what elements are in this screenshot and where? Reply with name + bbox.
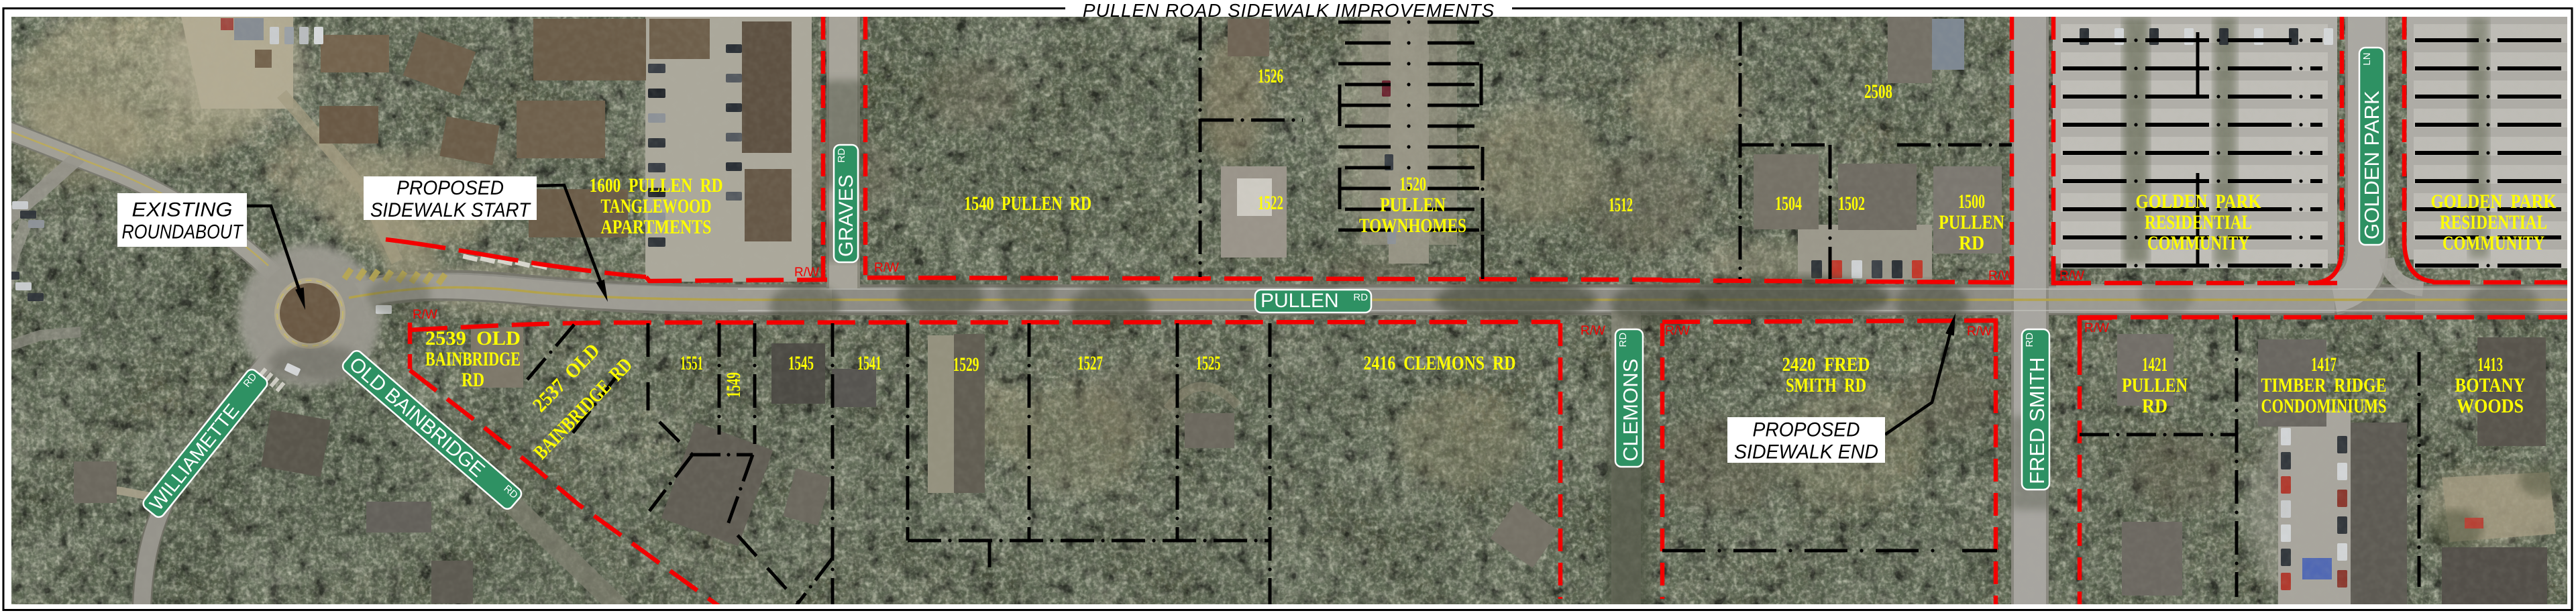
svg-text:RD: RD bbox=[1353, 292, 1368, 303]
svg-text:RD: RD bbox=[462, 369, 484, 391]
svg-text:RD: RD bbox=[2024, 333, 2035, 347]
svg-text:1417: 1417 bbox=[2311, 353, 2337, 376]
svg-text:RESIDENTIAL: RESIDENTIAL bbox=[2145, 211, 2252, 233]
svg-text:R/W: R/W bbox=[794, 266, 819, 280]
svg-text:PULLEN: PULLEN bbox=[1380, 194, 1446, 216]
svg-text:PULLEN: PULLEN bbox=[1939, 211, 2004, 233]
svg-text:PULLEN: PULLEN bbox=[2122, 374, 2188, 396]
svg-text:CONDOMINIUMS: CONDOMINIUMS bbox=[2261, 395, 2387, 417]
svg-text:PULLEN ROAD SIDEWALK IMPROVEME: PULLEN ROAD SIDEWALK IMPROVEMENTS bbox=[1083, 0, 1495, 21]
svg-text:GOLDEN PARK: GOLDEN PARK bbox=[2136, 190, 2262, 213]
svg-text:APARTMENTS: APARTMENTS bbox=[601, 216, 712, 238]
svg-text:1540 PULLEN RD: 1540 PULLEN RD bbox=[964, 192, 1091, 215]
svg-text:BAINBRIDGE: BAINBRIDGE bbox=[425, 348, 521, 370]
svg-text:SIDEWALK END: SIDEWALK END bbox=[1734, 441, 1878, 463]
svg-text:1525: 1525 bbox=[1196, 352, 1221, 374]
svg-text:PULLEN: PULLEN bbox=[1260, 290, 1339, 312]
svg-text:2539 OLD: 2539 OLD bbox=[425, 327, 521, 349]
svg-text:1520: 1520 bbox=[1399, 173, 1426, 195]
svg-text:WOODS: WOODS bbox=[2457, 395, 2524, 417]
svg-text:R/W: R/W bbox=[1665, 324, 1690, 338]
svg-text:GOLDEN PARK: GOLDEN PARK bbox=[2360, 91, 2383, 239]
svg-text:GRAVES: GRAVES bbox=[835, 174, 857, 257]
svg-text:1551: 1551 bbox=[680, 352, 703, 374]
svg-text:TOWNHOMES: TOWNHOMES bbox=[1359, 215, 1466, 237]
svg-text:RD: RD bbox=[1617, 333, 1629, 347]
svg-text:1549: 1549 bbox=[722, 372, 745, 398]
svg-text:RD: RD bbox=[836, 148, 847, 163]
svg-text:TANGLEWOOD: TANGLEWOOD bbox=[601, 195, 712, 217]
svg-text:1541: 1541 bbox=[857, 352, 881, 374]
svg-text:TIMBER RIDGE: TIMBER RIDGE bbox=[2261, 374, 2387, 396]
svg-text:RD: RD bbox=[2142, 395, 2167, 417]
svg-text:R/W: R/W bbox=[874, 261, 899, 275]
svg-text:2420 FRED: 2420 FRED bbox=[1782, 353, 1870, 376]
svg-text:SIDEWALK START: SIDEWALK START bbox=[370, 199, 531, 221]
svg-text:GOLDEN PARK: GOLDEN PARK bbox=[2431, 190, 2557, 213]
svg-text:1545: 1545 bbox=[788, 352, 814, 374]
svg-text:PROPOSED: PROPOSED bbox=[1753, 418, 1860, 441]
svg-text:R/W: R/W bbox=[1988, 269, 2013, 283]
svg-text:R/W: R/W bbox=[2059, 269, 2084, 283]
svg-text:1500: 1500 bbox=[1958, 190, 1985, 213]
svg-text:R/W: R/W bbox=[1580, 324, 1605, 338]
svg-text:R/W: R/W bbox=[1967, 325, 1992, 339]
svg-text:PROPOSED: PROPOSED bbox=[396, 177, 504, 199]
svg-text:R/W: R/W bbox=[413, 308, 437, 322]
svg-text:EXISTING: EXISTING bbox=[132, 199, 233, 221]
svg-text:BOTANY: BOTANY bbox=[2455, 374, 2526, 396]
svg-text:1502: 1502 bbox=[1838, 192, 1865, 215]
svg-text:1512: 1512 bbox=[1609, 194, 1633, 216]
svg-text:RESIDENTIAL: RESIDENTIAL bbox=[2440, 211, 2547, 233]
svg-text:FRED SMITH: FRED SMITH bbox=[2025, 357, 2049, 484]
svg-text:SMITH RD: SMITH RD bbox=[1786, 374, 1866, 396]
svg-text:1529: 1529 bbox=[953, 353, 979, 376]
svg-text:1421: 1421 bbox=[2142, 353, 2167, 376]
svg-text:COMMUNITY: COMMUNITY bbox=[2147, 232, 2249, 254]
svg-text:RD: RD bbox=[1959, 232, 1984, 254]
svg-text:ROUNDABOUT: ROUNDABOUT bbox=[122, 221, 244, 243]
svg-text:1527: 1527 bbox=[1077, 352, 1103, 374]
svg-text:1504: 1504 bbox=[1775, 192, 1802, 215]
svg-text:1600 PULLEN RD: 1600 PULLEN RD bbox=[590, 174, 723, 197]
svg-text:COMMUNITY: COMMUNITY bbox=[2443, 232, 2544, 254]
svg-text:2416 CLEMONS RD: 2416 CLEMONS RD bbox=[1364, 352, 1516, 374]
svg-text:1522: 1522 bbox=[1258, 192, 1283, 214]
svg-text:1413: 1413 bbox=[2477, 353, 2503, 376]
svg-text:2508: 2508 bbox=[1864, 80, 1892, 103]
svg-text:1526: 1526 bbox=[1258, 65, 1283, 87]
svg-text:R/W: R/W bbox=[2084, 321, 2109, 335]
svg-text:CLEMONS: CLEMONS bbox=[1619, 359, 1642, 461]
svg-text:LN: LN bbox=[2361, 52, 2373, 65]
